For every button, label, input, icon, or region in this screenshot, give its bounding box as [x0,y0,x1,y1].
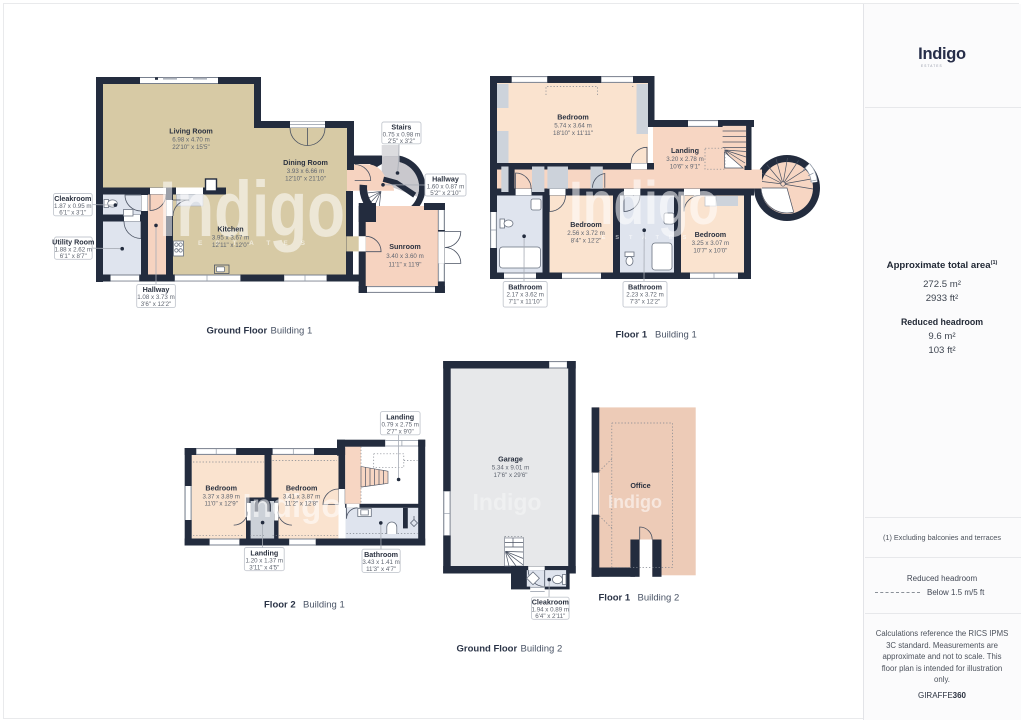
svg-text:Cleakroom: Cleakroom [532,598,569,607]
svg-text:3.20 x 2.78 m: 3.20 x 2.78 m [666,156,704,163]
svg-text:Hallway: Hallway [432,175,459,184]
svg-text:22'10" x 15'5": 22'10" x 15'5" [172,144,209,151]
svg-text:6.98 x 4.70 m: 6.98 x 4.70 m [172,137,210,144]
svg-text:Indigo: Indigo [608,492,662,512]
svg-text:3'6" x 12'2": 3'6" x 12'2" [141,301,172,308]
svg-text:17'6" x 29'6": 17'6" x 29'6" [494,472,528,479]
svg-text:5.74 x 3.64 m: 5.74 x 3.64 m [554,123,592,130]
svg-text:3.95 x 3.67 m: 3.95 x 3.67 m [212,235,250,242]
svg-text:12'10" x 21'10": 12'10" x 21'10" [285,176,326,183]
svg-text:3.25 x 3.07 m: 3.25 x 3.07 m [692,240,730,247]
svg-text:5'2" x 2'10": 5'2" x 2'10" [430,190,461,197]
svg-text:ESTATES: ESTATES [602,235,697,241]
svg-text:Bedroom: Bedroom [557,113,589,122]
svg-text:2'7" x 9'0": 2'7" x 9'0" [387,429,414,436]
svg-text:Building 1: Building 1 [303,600,345,611]
svg-text:Hallway: Hallway [143,285,170,294]
svg-text:10'6" x 9'1": 10'6" x 9'1" [670,164,701,171]
svg-text:Landing: Landing [386,413,414,422]
svg-text:Bedroom: Bedroom [695,230,727,239]
svg-text:Floor 1: Floor 1 [616,330,648,341]
svg-text:Ground Floor: Ground Floor [457,644,518,655]
svg-text:Office: Office [630,481,650,490]
svg-text:11'1" x 11'9": 11'1" x 11'9" [388,262,421,269]
svg-text:8'4" x 12'2": 8'4" x 12'2" [571,238,602,245]
svg-text:12'11" x 12'0": 12'11" x 12'0" [212,242,249,249]
svg-text:Garage: Garage [498,455,523,464]
svg-text:11'3" x 4'7": 11'3" x 4'7" [366,566,396,573]
svg-text:Ground Floor: Ground Floor [207,326,268,337]
svg-text:Cleakroom: Cleakroom [54,194,91,203]
svg-text:6'1" x 8'7": 6'1" x 8'7" [60,253,87,260]
svg-text:2.23 x 3.72 m: 2.23 x 3.72 m [626,292,664,299]
svg-text:Bedroom: Bedroom [286,484,318,493]
svg-text:1.20 x 1.37 m: 1.20 x 1.37 m [246,558,284,565]
svg-text:Sunroom: Sunroom [389,242,421,251]
svg-text:Bedroom: Bedroom [205,484,237,493]
svg-text:5.34 x 9.01 m: 5.34 x 9.01 m [492,465,530,472]
svg-text:11'2" x 12'8": 11'2" x 12'8" [285,501,318,508]
svg-text:Floor 2: Floor 2 [264,600,296,611]
svg-text:Stairs: Stairs [391,123,411,132]
svg-text:Living Room: Living Room [169,127,213,136]
svg-text:3.37 x 3.89 m: 3.37 x 3.89 m [202,493,240,500]
svg-text:Bathroom: Bathroom [364,550,398,559]
svg-text:6'4" x 2'11": 6'4" x 2'11" [535,613,565,620]
svg-text:6'1" x 3'1": 6'1" x 3'1" [59,210,86,217]
svg-text:Bathroom: Bathroom [508,283,542,292]
svg-text:2'5" x 3'2": 2'5" x 3'2" [388,138,415,145]
svg-text:Bedroom: Bedroom [570,220,602,229]
svg-text:Dining Room: Dining Room [283,158,328,167]
svg-text:Landing: Landing [671,146,699,155]
svg-text:7'1" x 11'10": 7'1" x 11'10" [508,299,541,306]
svg-text:3.43 x 1.41 m: 3.43 x 1.41 m [362,559,400,566]
svg-text:11'0" x 12'9": 11'0" x 12'9" [204,501,237,508]
svg-text:3.41 x 3.87 m: 3.41 x 3.87 m [283,493,321,500]
svg-text:Kitchen: Kitchen [217,225,243,234]
svg-text:7'3" x 12'2": 7'3" x 12'2" [630,299,661,306]
svg-text:Building 1: Building 1 [271,326,313,337]
svg-text:3.93 x 6.66 m: 3.93 x 6.66 m [287,168,325,175]
svg-text:Indigo: Indigo [473,489,542,515]
svg-text:3'11" x 4'5": 3'11" x 4'5" [249,565,279,572]
svg-text:Building 1: Building 1 [655,330,697,341]
svg-text:2.56 x 3.72 m: 2.56 x 3.72 m [567,230,605,237]
svg-text:Bathroom: Bathroom [628,283,662,292]
svg-text:Landing: Landing [250,549,278,558]
svg-text:Utility Room: Utility Room [52,238,94,247]
svg-text:18'10" x 11'11": 18'10" x 11'11" [553,130,593,137]
svg-text:3.40 x 3.60 m: 3.40 x 3.60 m [386,253,424,260]
svg-text:Building 2: Building 2 [638,593,680,604]
svg-text:10'7" x 10'0": 10'7" x 10'0" [693,248,727,255]
svg-text:Floor 1: Floor 1 [599,593,631,604]
svg-text:Building 2: Building 2 [521,644,563,655]
svg-text:0.79 x 2.75 m: 0.79 x 2.75 m [381,422,419,429]
svg-text:2.17 x 3.62 m: 2.17 x 3.62 m [506,292,544,299]
